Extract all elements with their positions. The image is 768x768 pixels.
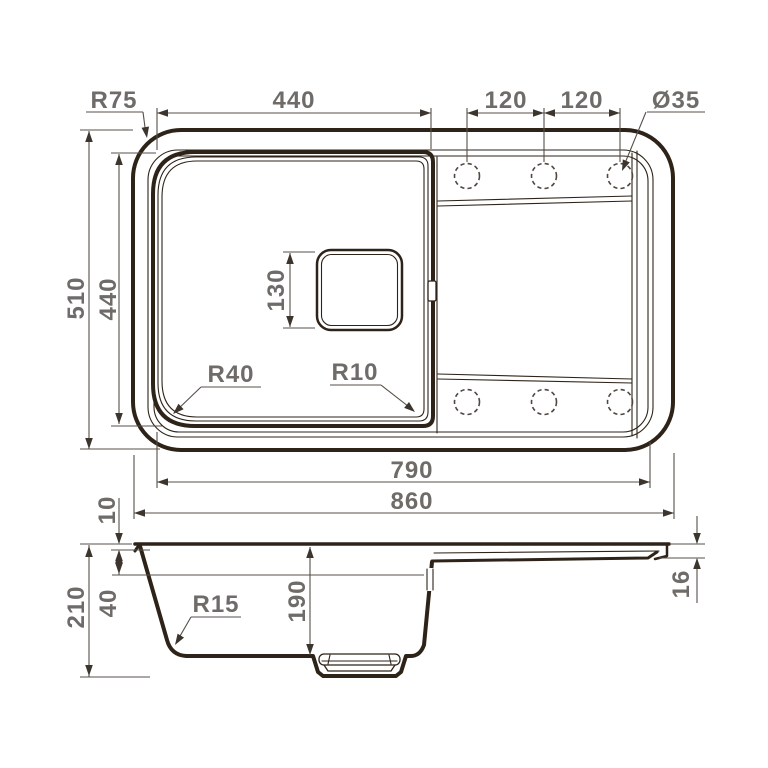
drain-square-outer: [317, 250, 402, 330]
drawing-page: R75 440 120 120 Ø35 510 440 130 R40 R10 …: [0, 0, 768, 768]
tap-hole: [532, 164, 557, 189]
tap-hole: [455, 164, 480, 189]
drainboard-ridge-top-1: [438, 196, 632, 201]
dim-label-drain-size: 130: [263, 268, 290, 311]
dim-label-bowl-radius-right: R10: [331, 359, 378, 386]
dimension-arrowheads: [85, 109, 701, 676]
dim-label-overall-height: 210: [63, 585, 90, 628]
tap-hole: [455, 390, 480, 415]
sink-rim-line-1: [148, 150, 653, 437]
overflow-notch: [428, 281, 436, 301]
drainboard-ridge-top-2: [438, 201, 632, 206]
section-drainboard-cut: [432, 552, 657, 561]
tap-hole: [532, 390, 557, 415]
tap-hole: [608, 164, 633, 189]
dim-label-bowl-radius-left: R40: [207, 361, 254, 388]
drainboard-ridge-bottom-2: [438, 379, 632, 383]
dim-label-corner-radius: R75: [90, 87, 137, 114]
dim-label-ledge-depth: 40: [95, 589, 122, 618]
dim-label-inner-width: 790: [390, 457, 433, 484]
dim-label-edge-thickness: 16: [668, 570, 695, 599]
dim-label-bowl-width: 440: [272, 87, 315, 114]
top-view: R75 440 120 120 Ø35 510 440 130 R40 R10 …: [63, 87, 705, 519]
sink-technical-drawing: R75 440 120 120 Ø35 510 440 130 R40 R10 …: [0, 0, 768, 768]
dim-label-overall-depth: 510: [63, 276, 90, 319]
dim-label-bottom-radius: R15: [192, 591, 239, 618]
bowl-inner-line-1: [158, 157, 428, 421]
dim-label-bowl-inner-depth: 190: [284, 579, 311, 622]
section-view: 10 210 40 R15 190 16: [63, 496, 705, 677]
tap-hole: [608, 390, 633, 415]
dim-label-rim-height: 10: [94, 496, 121, 525]
drain-square-inner: [322, 255, 398, 326]
section-drainboard-back-line: [434, 551, 659, 553]
dim-label-overall-width: 860: [390, 488, 433, 515]
drainboard-ridge-bottom-1: [438, 374, 632, 379]
dim-label-tap-spacing-right: 120: [560, 87, 603, 114]
bowl-inner-line-2: [162, 161, 424, 417]
drain-fitting: [319, 654, 400, 671]
dim-label-tap-spacing-left: 120: [484, 87, 527, 114]
dim-label-bowl-depth: 440: [95, 277, 122, 320]
bowl-outline: [153, 152, 433, 426]
dim-label-tap-hole-diameter: Ø35: [652, 87, 700, 114]
